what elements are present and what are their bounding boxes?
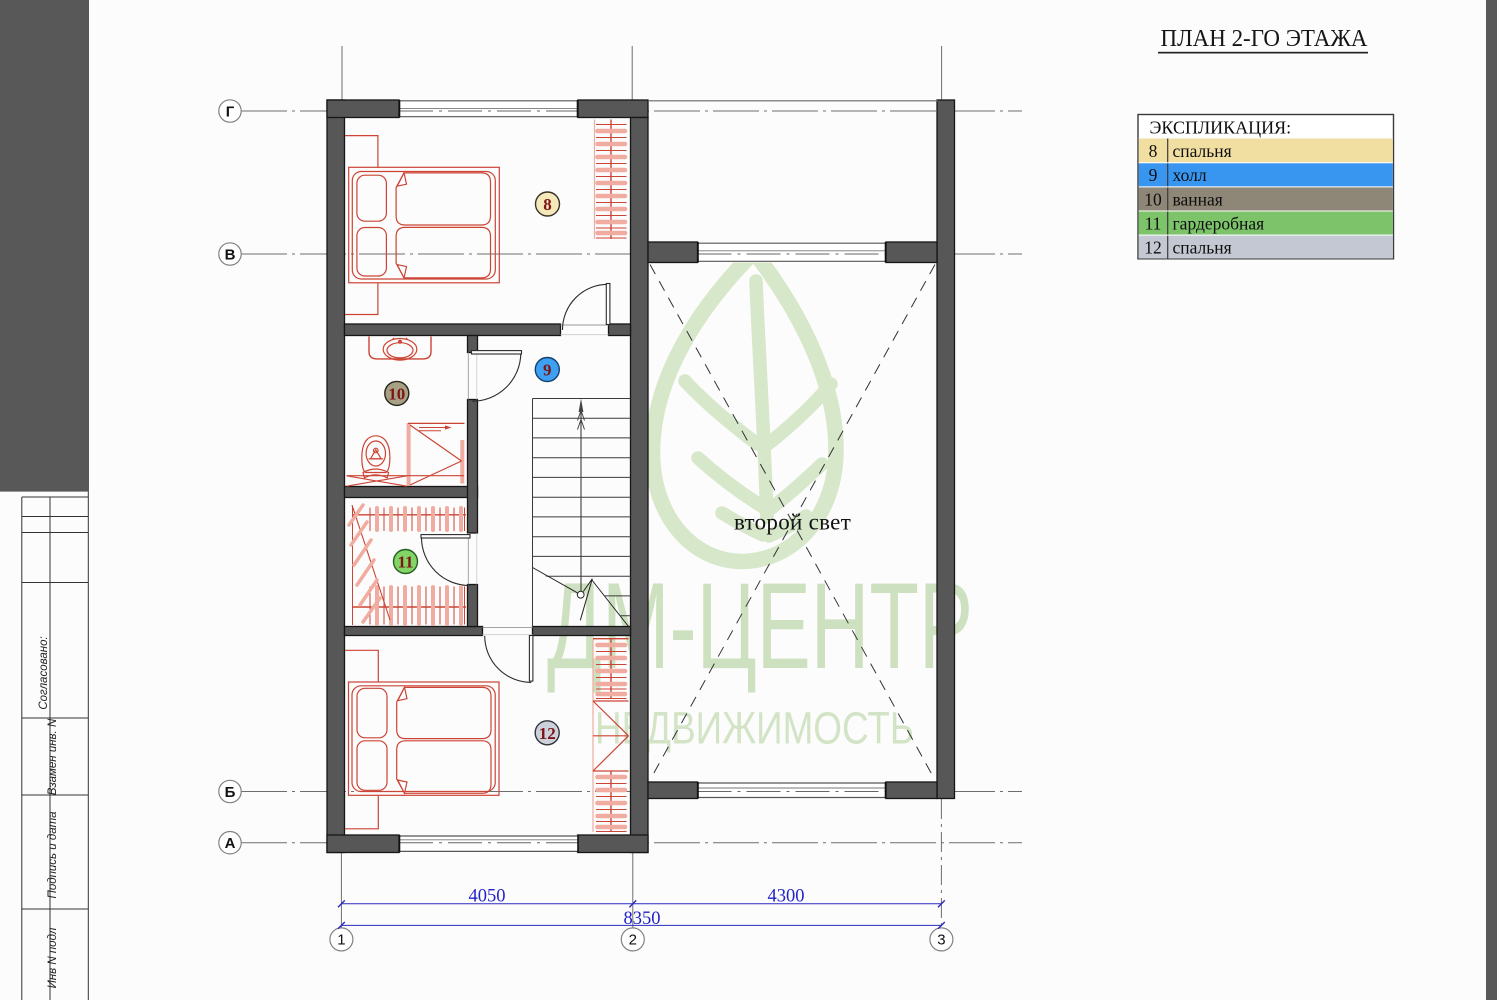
svg-text:В: В: [225, 246, 236, 263]
svg-text:12: 12: [1144, 238, 1162, 258]
svg-text:спальня: спальня: [1173, 141, 1232, 161]
svg-text:11: 11: [1145, 213, 1162, 233]
svg-text:11: 11: [397, 553, 413, 572]
svg-text:ванная: ванная: [1173, 189, 1223, 209]
svg-text:Г: Г: [226, 103, 235, 120]
svg-text:9: 9: [543, 361, 552, 380]
svg-text:Согласовано:: Согласовано:: [38, 636, 50, 709]
svg-text:4300: 4300: [768, 887, 805, 907]
svg-text:А: А: [225, 835, 236, 852]
svg-text:3: 3: [937, 932, 945, 949]
svg-text:ЭКСПЛИКАЦИЯ:: ЭКСПЛИКАЦИЯ:: [1150, 118, 1292, 138]
svg-text:1: 1: [337, 932, 345, 949]
svg-text:Взамен инв. N: Взамен инв. N: [47, 718, 59, 795]
svg-text:ПЛАН 2-ГО ЭТАЖА: ПЛАН 2-ГО ЭТАЖА: [1161, 25, 1368, 52]
svg-text:9: 9: [1149, 165, 1158, 185]
svg-text:10: 10: [388, 384, 405, 403]
svg-text:8: 8: [543, 195, 552, 214]
svg-text:Подпись и дата: Подпись и дата: [47, 812, 59, 899]
svg-text:12: 12: [539, 724, 556, 743]
svg-text:Инв N подл: Инв N подл: [47, 927, 59, 988]
svg-text:4050: 4050: [469, 887, 506, 907]
svg-text:холл: холл: [1173, 165, 1207, 185]
svg-text:гардеробная: гардеробная: [1173, 213, 1265, 233]
svg-text:2: 2: [629, 932, 637, 949]
svg-text:Б: Б: [225, 784, 236, 801]
svg-text:8: 8: [1149, 141, 1158, 161]
svg-text:8350: 8350: [624, 909, 661, 929]
svg-text:спальня: спальня: [1173, 238, 1232, 258]
svg-text:10: 10: [1144, 189, 1162, 209]
